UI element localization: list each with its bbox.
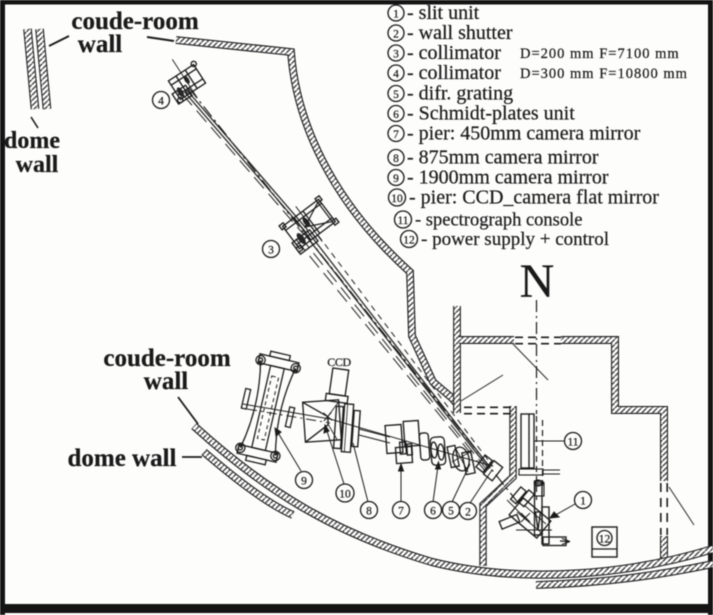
svg-text:4: 4	[393, 69, 399, 81]
svg-text:CCD: CCD	[327, 355, 351, 369]
svg-text:- collimator: - collimator	[407, 62, 501, 84]
svg-text:7: 7	[393, 129, 399, 141]
svg-text:wall: wall	[144, 368, 189, 395]
svg-text:wall: wall	[78, 31, 123, 58]
svg-text:D=200 mm F=7100 mm: D=200 mm F=7100 mm	[520, 46, 680, 62]
svg-text:- 1900mm camera mirror: - 1900mm camera mirror	[407, 167, 609, 189]
svg-text:2: 2	[465, 507, 471, 519]
svg-text:10: 10	[339, 489, 351, 501]
svg-text:3: 3	[393, 49, 399, 61]
svg-text:9: 9	[393, 173, 399, 185]
svg-text:- slit unit: - slit unit	[407, 2, 480, 24]
svg-text:- wall shutter: - wall shutter	[407, 22, 513, 44]
svg-text:12: 12	[403, 235, 415, 247]
svg-text:10: 10	[391, 193, 403, 205]
svg-text:11: 11	[397, 215, 408, 227]
svg-text:wall: wall	[16, 152, 59, 178]
svg-text:8: 8	[366, 506, 372, 518]
svg-text:1: 1	[580, 496, 586, 508]
svg-text:2: 2	[393, 29, 399, 41]
svg-text:dome wall: dome wall	[67, 445, 176, 472]
svg-text:- pier: 450mm camera mirror: - pier: 450mm camera mirror	[407, 123, 641, 145]
svg-text:7: 7	[398, 506, 404, 518]
svg-text:- collimator: - collimator	[407, 42, 501, 64]
svg-text:- pier: CCD_camera flat mirror: - pier: CCD_camera flat mirror	[409, 187, 659, 209]
svg-text:5: 5	[393, 89, 399, 101]
svg-text:- spectrograph console: - spectrograph console	[415, 211, 582, 231]
svg-text:dome: dome	[4, 128, 60, 154]
svg-text:11: 11	[567, 437, 578, 449]
svg-text:4: 4	[158, 96, 164, 108]
svg-text:- difr. grating: - difr. grating	[407, 83, 513, 105]
svg-text:3: 3	[268, 245, 274, 257]
svg-text:12: 12	[599, 534, 611, 546]
svg-text:5: 5	[448, 506, 454, 518]
svg-text:- power supply + control: - power supply + control	[421, 229, 609, 250]
svg-text:6: 6	[393, 109, 399, 121]
svg-text:9: 9	[301, 476, 307, 488]
svg-text:6: 6	[430, 506, 436, 518]
svg-text:- Schmidt-plates unit: - Schmidt-plates unit	[407, 103, 575, 125]
svg-text:- 875mm camera mirror: - 875mm camera mirror	[407, 147, 599, 169]
svg-text:1: 1	[393, 9, 399, 21]
svg-text:D=300 mm F=10800 mm: D=300 mm F=10800 mm	[520, 66, 688, 82]
svg-text:8: 8	[393, 153, 399, 165]
